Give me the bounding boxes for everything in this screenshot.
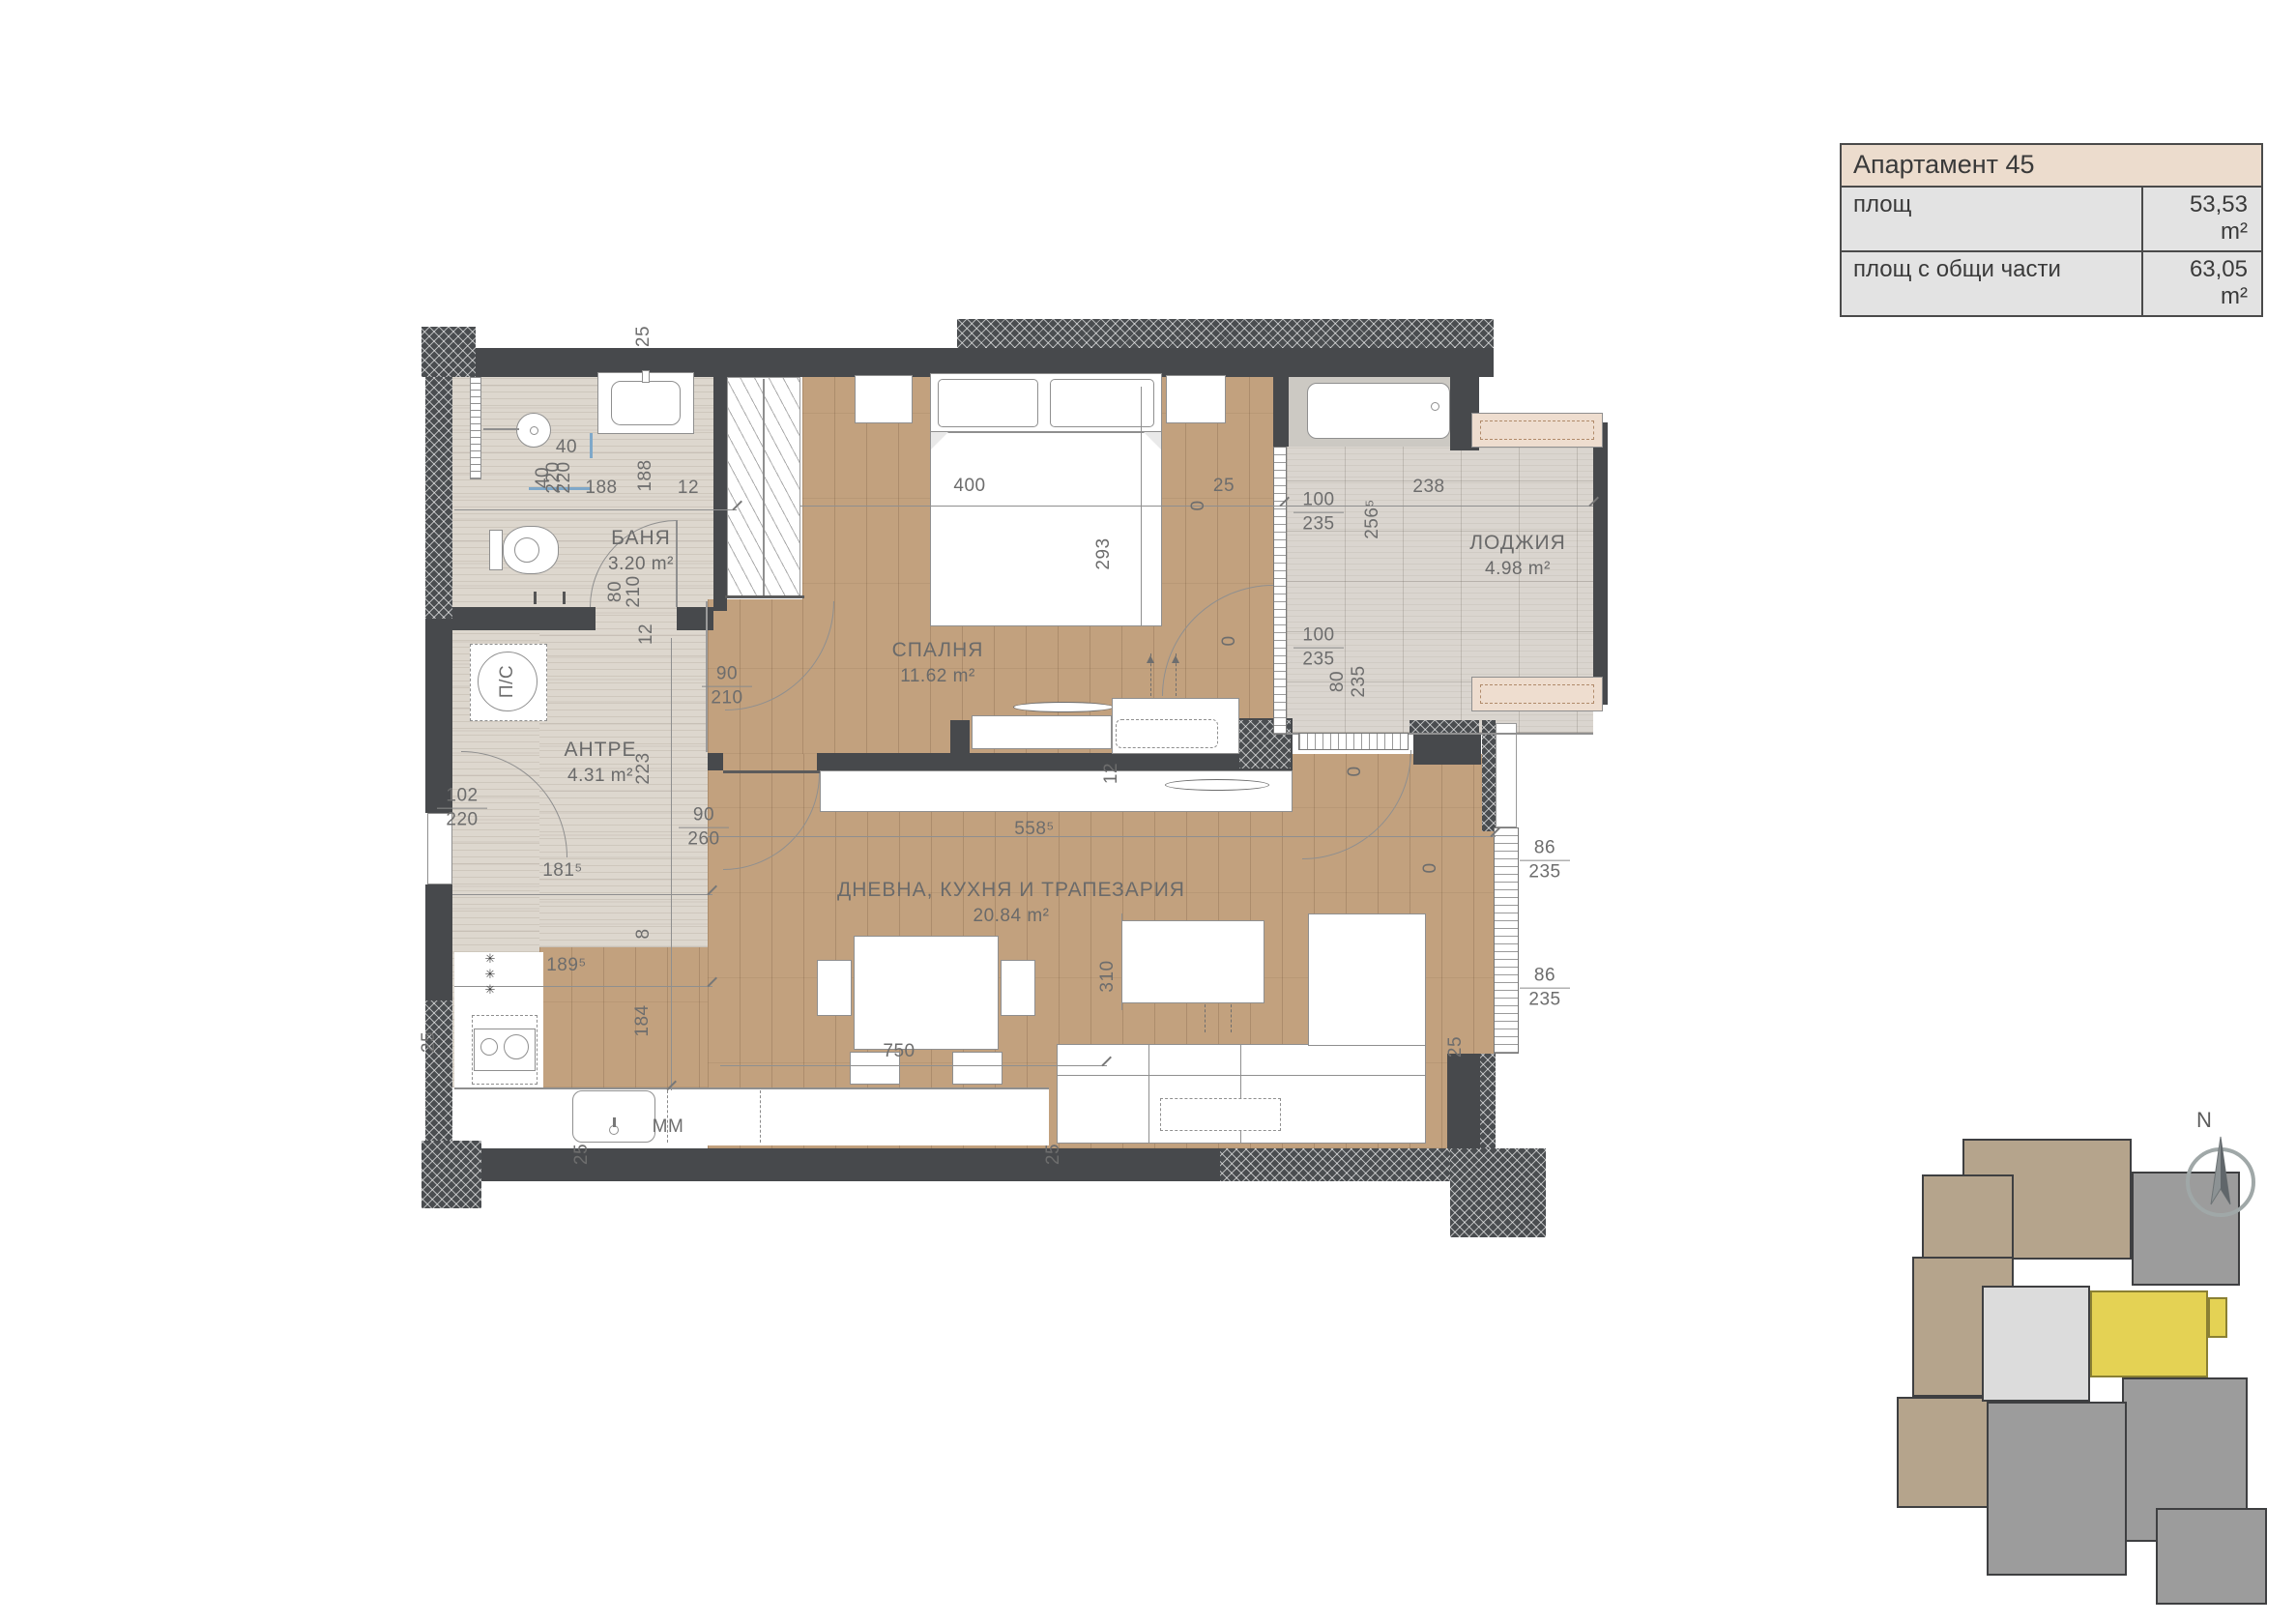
dim-label: 25 [1213,476,1235,497]
bedroom-door-leaf [725,595,804,598]
loggia-right-wall [1593,422,1608,705]
dim-stack-label: 102220 [437,786,487,831]
room-label-антре: АНТРЕ4.31 m² [564,739,636,787]
shower-arm [483,428,519,430]
dim-label: 25 [633,326,654,347]
right-corner-insulation [1480,1054,1496,1148]
right-wall-white [1496,723,1517,827]
room-label-лоджия: ЛОДЖИЯ4.98 m² [1469,532,1566,580]
dim-label: 40 [556,437,577,458]
overview-unit [1987,1402,2127,1576]
fold-out-bench-dashed [1116,719,1218,748]
living-tv [1165,779,1269,791]
dining-chair [952,1052,1003,1085]
bathroom-sink-basin [611,381,681,425]
wall-corner-insulation [421,327,476,377]
dim-label: MM [653,1116,684,1138]
dim-line [452,894,712,895]
pillow [1050,379,1154,427]
dim-label: 0 [1188,500,1209,510]
dim-label: 400 [953,476,985,497]
dim-label: 293 [1093,537,1115,569]
wall-left-insulation [425,1000,452,1148]
blanket-edge [930,431,1162,433]
sofa-chaise [1308,913,1426,1046]
dim-label: 188 [585,478,617,499]
bathroom-bottom-wall [677,607,713,630]
overview-core [1982,1286,2090,1402]
bedroom-tv [1013,702,1114,712]
bathroom-door-leaf [676,520,678,607]
sink-tap [642,370,650,383]
dim-label: 25 [571,1144,593,1165]
nightstand [1166,375,1226,423]
dim-label: 12 [1101,763,1122,784]
dim-label: 0 [1345,766,1366,776]
wall-corner-insulation [1450,1148,1546,1237]
overview-highlighted-unit-tab [2208,1297,2227,1338]
dim-stack-label: 100235 [1293,490,1344,536]
area-row: площ 53,53 m² [1842,188,2261,252]
kitchen-counter-area [454,1087,1049,1145]
area-common-value: 63,05 m² [2143,252,2261,315]
counter-edge [454,1087,1049,1089]
wall-tap [534,592,537,604]
bedroom-tv-console [972,715,1112,749]
area-value: 53,53 m² [2143,188,2261,250]
loggia-left-window [1273,447,1287,735]
living-window [1494,827,1519,1054]
dim-label: 235 [1349,665,1370,697]
dim-label: 12 [678,478,699,499]
toilet-tank [489,530,503,570]
wall-tap [563,592,566,604]
dim-line [454,509,737,510]
room-label-баня: БАНЯ3.20 m² [608,527,674,575]
sofa-seam [1058,1075,1425,1076]
bathroom-bottom-wall [452,607,596,630]
wall-left-insulation [425,377,452,619]
dim-label: 310 [1097,960,1119,992]
dim-label: 181⁵ [542,860,583,882]
toilet-flush [514,537,539,563]
dim-label: П/С [497,665,518,698]
loggia-door [1298,733,1409,750]
dim-label: 8 [633,928,654,939]
dim-label: 220 [543,461,565,493]
dim-stack-label: 90260 [679,805,729,851]
wall-corner-insulation [421,1141,481,1208]
appliance-slot-divider [760,1090,761,1143]
tv-wall [708,753,723,770]
dim-line [720,1065,1107,1066]
dim-label: 184 [632,1004,654,1036]
blanket-fold [1144,432,1161,449]
dining-chair [1001,960,1035,1016]
living-tv-console [820,770,1293,812]
floor-plan-page: Апартамент 45 площ 53,53 m² площ с общи … [0,0,2296,1623]
dim-label: 80 [1327,671,1349,692]
dim-label: 750 [883,1041,915,1062]
burner [480,1038,498,1056]
right-corner-post [1447,1054,1480,1148]
fold-out-arrow [1150,653,1151,696]
apartment-info-table: Апартамент 45 площ 53,53 m² площ с общи … [1840,143,2263,317]
dim-label: 12 [636,623,657,645]
room-label-спалня: СПАЛНЯ11.62 m² [892,639,984,687]
area-common-row: площ с общи части 63,05 m² [1842,252,2261,315]
bedroom-loggia-post [1273,365,1289,447]
dim-stack-label: 86235 [1520,966,1570,1011]
tv-niche-post [950,720,970,770]
pillow [938,379,1038,427]
ac-unit [1307,383,1450,439]
overview-highlighted-unit [2090,1290,2208,1377]
fold-out-arrow [1176,653,1177,696]
dim-stack-label: 86235 [1520,838,1570,884]
dim-label: 256⁵ [1362,499,1383,539]
dining-chair [817,960,852,1016]
loggia-side-insulation [1410,720,1479,734]
dim-line [1121,913,1122,1010]
shower-head-center [530,426,538,435]
wall-bottom-insulation [1220,1148,1454,1181]
dim-stack-label: 90210 [702,664,752,710]
dim-line [1141,387,1142,626]
dim-line [708,836,1496,837]
blanket-fold [931,432,948,449]
loggia-planter [1471,677,1603,711]
area-label: площ [1842,188,2143,250]
sofa-pullout-dashed [1160,1098,1281,1131]
dim-label: ✳ [485,951,498,967]
dim-label: 25 [1043,1144,1064,1165]
wall-top-insulation [957,319,1494,348]
nightstand [855,375,913,423]
tv-wall [817,753,1196,770]
kitchen-tap-stem [613,1117,616,1127]
dim-label: 25 [419,1031,440,1053]
overview-unit [2156,1508,2267,1605]
dining-table [854,936,999,1050]
dim-label: ✳ [485,982,498,998]
dim-label: 188 [635,459,656,491]
dim-label: 189⁵ [546,955,587,976]
right-wall-insulation [1482,720,1496,831]
dim-label: 223 [633,752,654,784]
dim-stack-label: 100235 [1293,625,1344,671]
loggia-planter [1471,413,1603,448]
compass-icon [2177,1129,2264,1226]
wardrobe-rail [763,379,765,595]
area-common-label: площ с общи части [1842,252,2143,315]
dim-label: 210 [624,575,645,607]
burner [504,1034,529,1059]
loggia-side-block [1413,734,1481,765]
sofa-seam [1148,1045,1149,1143]
ac-unit-detail [1431,402,1439,411]
dim-label: 0 [1420,862,1441,873]
dim-label: 0 [1219,635,1240,646]
dim-line [671,638,672,1090]
dim-label: 238 [1412,477,1444,498]
apartment-title: Апартамент 45 [1842,145,2261,188]
shower-glass [590,433,593,458]
dim-label: 558⁵ [1014,819,1055,840]
room-label-дневна, кухня и трапезария: ДНЕВНА, КУХНЯ И ТРАПЕЗАРИЯ20.84 m² [837,879,1185,927]
dim-label: 25 [1445,1036,1467,1058]
dim-label: ✳ [485,967,498,982]
coffee-table [1121,920,1264,1003]
towel-radiator [470,377,481,479]
bathroom-right-wall [713,365,727,611]
